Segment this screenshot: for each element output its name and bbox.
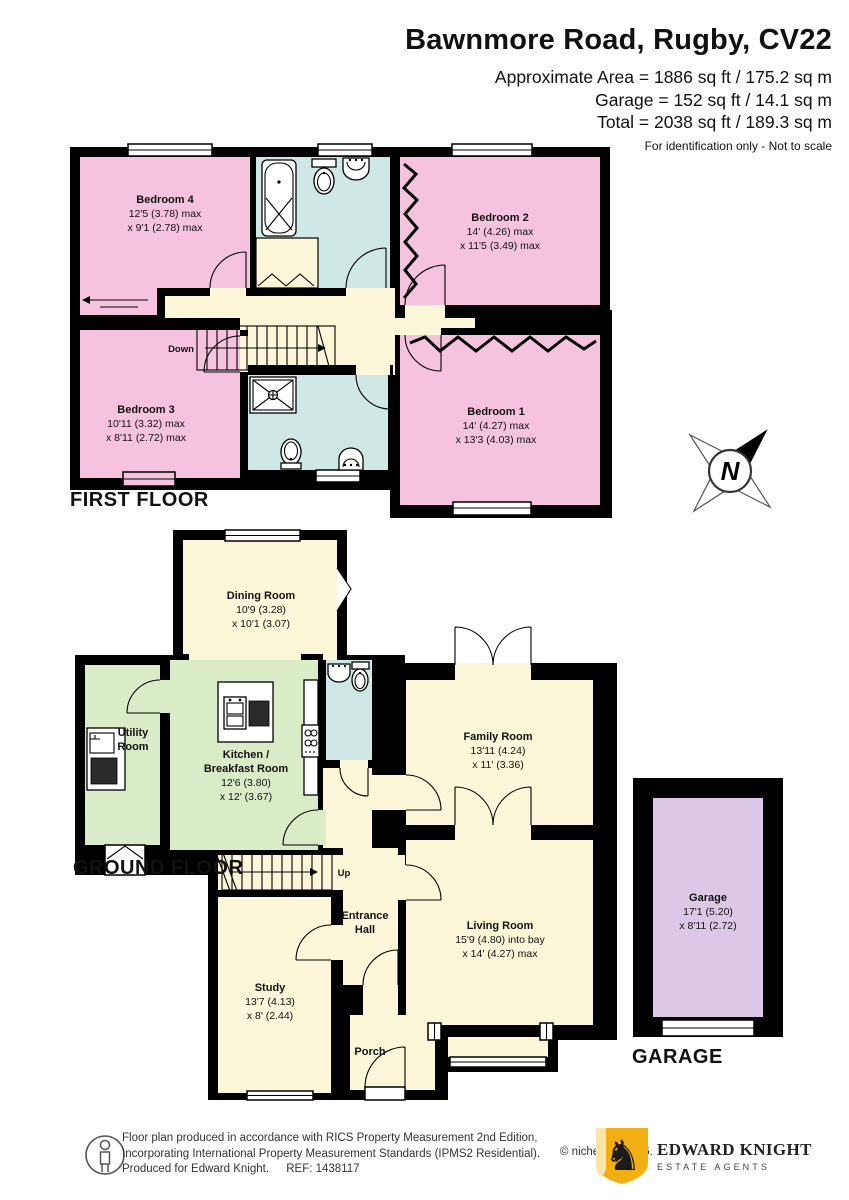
svg-text:♞: ♞	[604, 1131, 642, 1180]
svg-text:Bedroom 3: Bedroom 3	[117, 404, 174, 416]
svg-text:Up: Up	[338, 868, 351, 879]
svg-text:x 9'1 (2.78) max: x 9'1 (2.78) max	[128, 222, 204, 234]
page-title: Bawnmore Road, Rugby, CV22	[405, 24, 832, 57]
knight-shield-icon: ♞	[594, 1126, 650, 1186]
svg-text:15'9 (4.80) into bay: 15'9 (4.80) into bay	[455, 934, 545, 946]
svg-text:Entrance: Entrance	[341, 910, 388, 922]
footer-disclaimer: Floor plan produced in accordance with R…	[122, 1131, 540, 1178]
toilet-icon-bathroom	[312, 159, 336, 194]
basin-icon-wc	[328, 664, 350, 682]
svg-text:x 11'5 (3.49) max: x 11'5 (3.49) max	[460, 240, 541, 252]
svg-text:13'7 (4.13): 13'7 (4.13)	[245, 996, 295, 1008]
french-doors-family-garden	[455, 627, 531, 665]
svg-text:12'6 (3.80): 12'6 (3.80)	[221, 777, 271, 789]
svg-text:x 14' (4.27) max: x 14' (4.27) max	[463, 948, 539, 960]
svg-text:x 8' (2.44): x 8' (2.44)	[247, 1010, 293, 1022]
svg-text:Dining Room: Dining Room	[227, 590, 296, 602]
reference-number: REF: 1438117	[286, 1163, 359, 1175]
brand-tagline: ESTATE AGENTS	[657, 1162, 812, 1172]
basin-icon-bathroom	[343, 158, 369, 180]
produced-for: Produced for Edward Knight.	[122, 1163, 269, 1175]
brand-name: EDWARD KNIGHT	[657, 1140, 812, 1160]
garage-plan: Garage 17'1 (5.20) x 8'11 (2.72)	[630, 770, 790, 1050]
svg-text:Utility: Utility	[118, 727, 149, 739]
svg-text:14' (4.26) max: 14' (4.26) max	[467, 226, 535, 238]
svg-text:10'11 (3.32) max: 10'11 (3.32) max	[107, 418, 185, 430]
svg-text:x 13'3 (4.03) max: x 13'3 (4.03) max	[456, 434, 538, 446]
edward-knight-logo: ♞ EDWARD KNIGHT ESTATE AGENTS	[594, 1126, 812, 1186]
ground-floor-plan: Dining Room 10'9 (3.28) x 10'1 (3.07) Ut…	[60, 525, 630, 1100]
total-area: Total = 2038 sq ft / 189.3 sq m	[405, 111, 832, 134]
svg-text:x 8'11 (2.72) max: x 8'11 (2.72) max	[106, 432, 187, 444]
svg-text:Hall: Hall	[355, 924, 375, 936]
kitchen-island-sink-icon	[218, 682, 273, 742]
compass: N	[668, 408, 793, 533]
compass-north-letter: N	[721, 456, 741, 486]
garage-area: Garage = 152 sq ft / 14.1 sq m	[405, 89, 832, 112]
svg-text:Down: Down	[168, 344, 194, 355]
svg-text:x 12' (3.67): x 12' (3.67)	[220, 791, 272, 803]
bay-floor	[448, 1037, 548, 1057]
garage-door	[662, 1020, 754, 1036]
svg-text:Bedroom 2: Bedroom 2	[471, 212, 528, 224]
bath-icon	[262, 160, 296, 236]
hob-icon	[302, 725, 319, 757]
svg-text:Garage: Garage	[689, 892, 727, 904]
header: Bawnmore Road, Rugby, CV22 Approximate A…	[405, 24, 832, 153]
svg-text:Living Room: Living Room	[467, 920, 534, 932]
area-summary: Approximate Area = 1886 sq ft / 175.2 sq…	[405, 66, 832, 134]
toilet-icon-wc	[352, 662, 369, 691]
room-hall-inner	[323, 768, 372, 848]
svg-text:x 11' (3.36): x 11' (3.36)	[472, 759, 523, 771]
svg-text:Bedroom 1: Bedroom 1	[467, 406, 524, 418]
svg-text:17'1 (5.20): 17'1 (5.20)	[683, 906, 733, 918]
room-study	[218, 897, 331, 1093]
airing-cupboard	[256, 238, 318, 288]
svg-text:13'11 (4.24): 13'11 (4.24)	[471, 745, 526, 757]
toilet-icon-shower-room	[281, 439, 301, 469]
svg-text:10'9 (3.28): 10'9 (3.28)	[236, 604, 286, 616]
disclaimer-line-3: Produced for Edward Knight. REF: 1438117	[122, 1162, 540, 1178]
basin-icon-shower-room	[339, 448, 363, 470]
svg-text:Family Room: Family Room	[463, 731, 532, 743]
disclaimer-line-1: Floor plan produced in accordance with R…	[122, 1131, 540, 1147]
shower-icon	[250, 377, 296, 413]
room-living	[406, 840, 593, 1025]
svg-text:Porch: Porch	[354, 1046, 385, 1058]
svg-text:Kitchen /: Kitchen /	[223, 749, 269, 761]
svg-text:14' (4.27) max: 14' (4.27) max	[463, 420, 531, 432]
ground-floor-label: GROUND FLOOR	[73, 857, 243, 880]
svg-text:Bedroom 4: Bedroom 4	[136, 194, 194, 206]
svg-text:x 10'1 (3.07): x 10'1 (3.07)	[232, 618, 290, 630]
approximate-area: Approximate Area = 1886 sq ft / 175.2 sq…	[405, 66, 832, 89]
svg-text:Room: Room	[117, 741, 148, 753]
garage-label: GARAGE	[632, 1046, 723, 1069]
svg-text:x 8'11 (2.72): x 8'11 (2.72)	[679, 920, 736, 932]
svg-text:12'5 (3.78) max: 12'5 (3.78) max	[129, 208, 202, 220]
svg-text:Breakfast Room: Breakfast Room	[204, 763, 289, 775]
disclaimer-line-2: Incorporating International Property Mea…	[122, 1147, 540, 1163]
first-floor-plan: Bedroom 4 12'5 (3.78) max x 9'1 (2.78) m…	[60, 140, 620, 525]
svg-text:Study: Study	[255, 982, 286, 994]
first-floor-label: FIRST FLOOR	[70, 489, 209, 512]
brand-text: EDWARD KNIGHT ESTATE AGENTS	[657, 1140, 812, 1172]
floorplan-page: Bawnmore Road, Rugby, CV22 Approximate A…	[0, 0, 849, 1200]
